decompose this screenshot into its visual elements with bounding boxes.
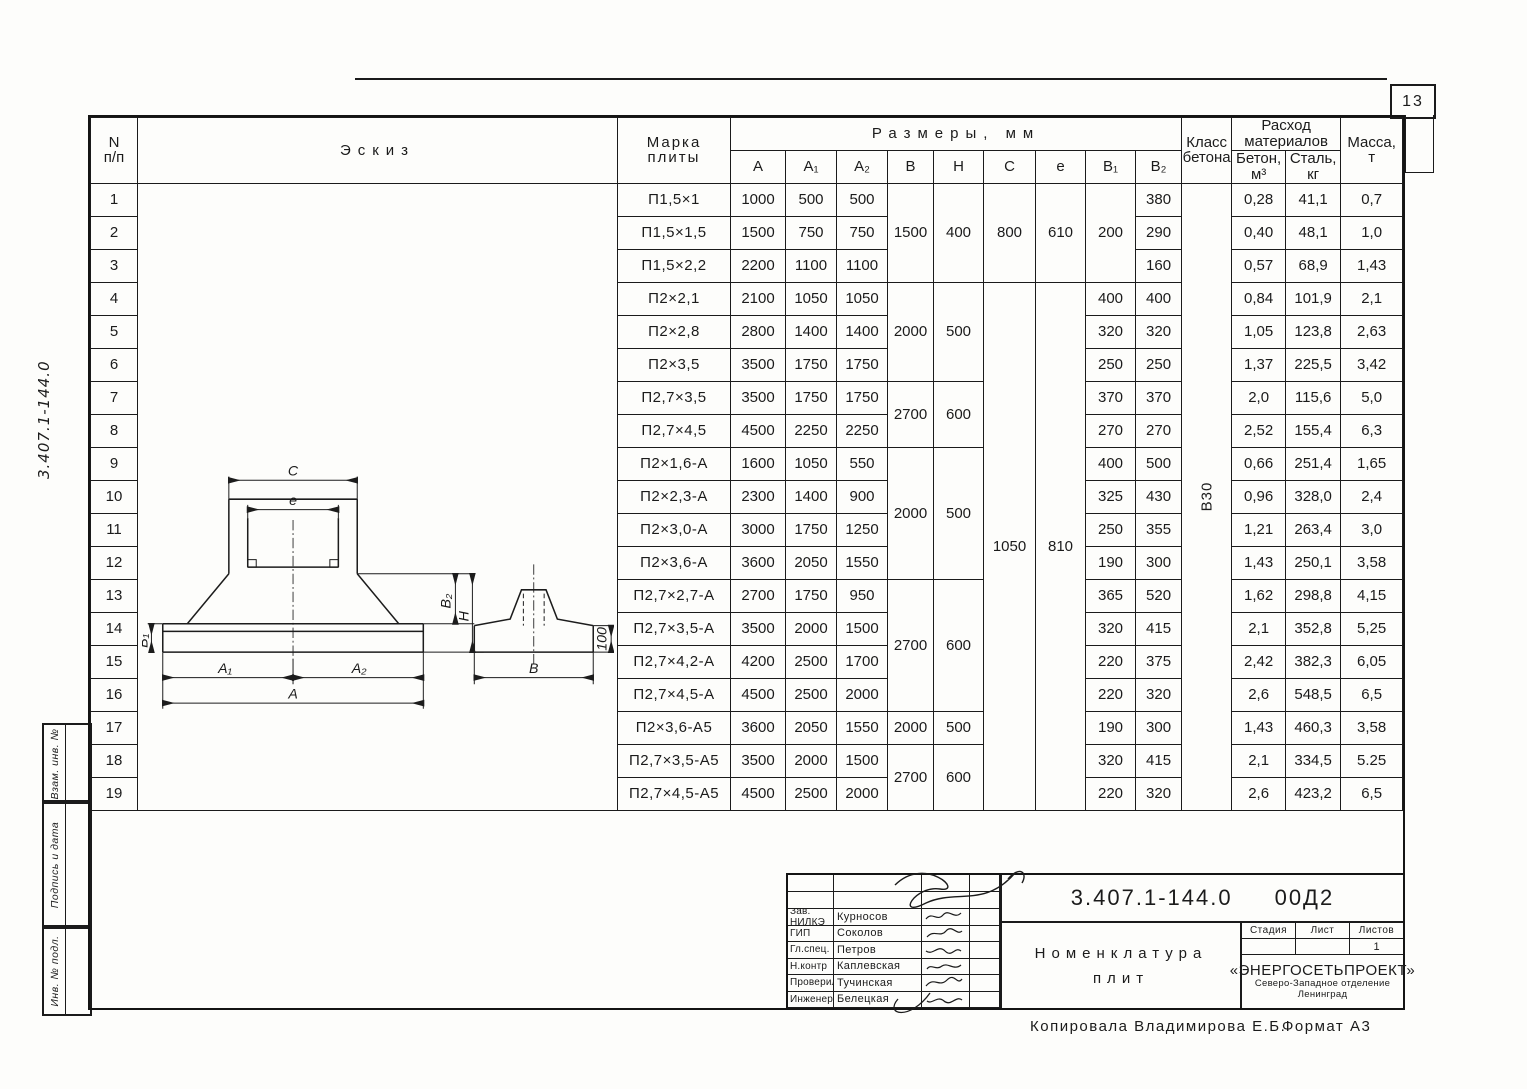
person-name: Соколов — [834, 926, 922, 943]
dim-a: 1600 — [731, 447, 786, 480]
header-col-a: А — [731, 150, 786, 183]
plate-mass: 3,42 — [1341, 348, 1403, 381]
header-col-b1: В₁ — [1086, 150, 1136, 183]
signature-cell — [922, 942, 970, 959]
steel-weight: 548,5 — [1286, 678, 1341, 711]
dim-b2: 380 — [1136, 183, 1182, 216]
dim-a: 3500 — [731, 612, 786, 645]
dim-a2: 1750 — [837, 348, 888, 381]
dim-a: 1500 — [731, 216, 786, 249]
dim-b1: 190 — [1086, 711, 1136, 744]
concrete-volume: 0,96 — [1232, 480, 1286, 513]
plate-mass: 1,43 — [1341, 249, 1403, 282]
steel-weight: 298,8 — [1286, 579, 1341, 612]
dim-label-a2: А₂ — [350, 660, 366, 676]
dim-a2: 900 — [837, 480, 888, 513]
header-col-b: В — [888, 150, 934, 183]
dim-b2: 500 — [1136, 447, 1182, 480]
plate-mark: П2×1,6-А — [618, 447, 731, 480]
dim-a2: 2000 — [837, 678, 888, 711]
header-dimensions: Размеры, мм — [731, 118, 1182, 151]
plate-mass: 6,5 — [1341, 777, 1403, 810]
stage-sheet-header-row: Стадия Лист Листов — [1242, 923, 1403, 939]
dim-b: 2000 — [888, 447, 934, 579]
dim-a: 2800 — [731, 315, 786, 348]
row-number: 16 — [91, 678, 138, 711]
stamp-label: Инв. № подл. — [49, 935, 61, 1006]
role-label: ГИП — [788, 926, 834, 943]
concrete-volume: 0,66 — [1232, 447, 1286, 480]
dim-label-100: 100 — [594, 626, 610, 650]
plate-mark: П2×2,8 — [618, 315, 731, 348]
page-number-column — [1405, 115, 1434, 173]
signature-squiggle — [924, 910, 964, 923]
steel-weight: 225,5 — [1286, 348, 1341, 381]
stage-value — [1242, 939, 1296, 954]
dim-b1: 400 — [1086, 282, 1136, 315]
document-number: 3.407.1-144.0 00Д2 — [1000, 875, 1403, 923]
steel-weight: 68,9 — [1286, 249, 1341, 282]
concrete-volume: 2,42 — [1232, 645, 1286, 678]
dim-b2: 300 — [1136, 546, 1182, 579]
steel-weight: 328,0 — [1286, 480, 1341, 513]
dim-b1: 250 — [1086, 513, 1136, 546]
sketch-cell: С е В₁ В₂ Н А₁ А₂ А В 100 — [138, 183, 618, 810]
dim-e: 810 — [1036, 282, 1086, 810]
dim-b2: 320 — [1136, 315, 1182, 348]
stamp-label-strip: Подпись и дата — [44, 802, 66, 927]
steel-weight: 334,5 — [1286, 744, 1341, 777]
plate-mark: П1,5×1,5 — [618, 216, 731, 249]
dim-a1: 1750 — [786, 513, 837, 546]
concrete-volume: 2,1 — [1232, 744, 1286, 777]
handwritten-margin-code: 3.407.1-144.0 — [35, 363, 57, 479]
signature-squiggle — [924, 927, 964, 940]
dim-a: 3500 — [731, 348, 786, 381]
plate-mark: П2×2,3-А — [618, 480, 731, 513]
plate-mark: П1,5×1 — [618, 183, 731, 216]
dim-h: 600 — [934, 381, 984, 447]
stamp-box-podpis-data: Подпись и дата — [42, 800, 92, 929]
dim-a: 3500 — [731, 381, 786, 414]
steel-weight: 251,4 — [1286, 447, 1341, 480]
concrete-volume: 1,43 — [1232, 546, 1286, 579]
empty-cell — [788, 875, 834, 892]
dim-label-b: В — [529, 660, 538, 676]
concrete-volume: 0,28 — [1232, 183, 1286, 216]
dim-a1: 1750 — [786, 348, 837, 381]
row-number: 8 — [91, 414, 138, 447]
plate-mass: 6,5 — [1341, 678, 1403, 711]
dim-b2: 430 — [1136, 480, 1182, 513]
dim-e: 610 — [1036, 183, 1086, 282]
dim-b1: 220 — [1086, 777, 1136, 810]
dim-a2: 750 — [837, 216, 888, 249]
header-sketch: Эскиз — [138, 118, 618, 184]
signature-cell — [922, 992, 970, 1009]
dim-b2: 250 — [1136, 348, 1182, 381]
dim-c: 1050 — [984, 282, 1036, 810]
dim-a: 3000 — [731, 513, 786, 546]
plate-mass: 6,3 — [1341, 414, 1403, 447]
dim-a1: 2000 — [786, 744, 837, 777]
plate-mark: П2,7×4,5-А5 — [618, 777, 731, 810]
concrete-volume: 0,40 — [1232, 216, 1286, 249]
dim-b1: 220 — [1086, 678, 1136, 711]
dim-b2: 320 — [1136, 777, 1182, 810]
dim-h: 400 — [934, 183, 984, 282]
plate-mark: П2×3,0-А — [618, 513, 731, 546]
dim-b1: 200 — [1086, 183, 1136, 282]
dim-b1: 320 — [1086, 744, 1136, 777]
plate-mark: П2,7×4,5 — [618, 414, 731, 447]
header-concrete-class: Класс бетона — [1182, 118, 1232, 184]
dim-label-b1: В₁ — [142, 633, 152, 647]
dim-h: 500 — [934, 711, 984, 744]
drawing-title: Номенклатура плит — [1000, 923, 1240, 1008]
table-row: 1 С е В₁ В₂ Н А₁ А₂ А — [91, 183, 1403, 216]
dim-a1: 1750 — [786, 381, 837, 414]
dim-a1: 1100 — [786, 249, 837, 282]
plate-mark: П2,7×4,5-А — [618, 678, 731, 711]
steel-weight: 155,4 — [1286, 414, 1341, 447]
signature-squiggle — [924, 993, 964, 1006]
signature-grid: Зав. НИЛКЭ Курносов ГИП Соколов Гл.спец.… — [788, 875, 1000, 1008]
dim-b1: 325 — [1086, 480, 1136, 513]
dim-a1: 1050 — [786, 282, 837, 315]
person-name: Белецкая — [834, 992, 922, 1009]
stage-label: Стадия — [1242, 923, 1296, 938]
dim-a: 2100 — [731, 282, 786, 315]
dim-b1: 270 — [1086, 414, 1136, 447]
signature-cell — [922, 926, 970, 943]
dim-label-a: А — [287, 686, 297, 702]
plate-mark: П2×2,1 — [618, 282, 731, 315]
dim-a1: 2500 — [786, 645, 837, 678]
date-cell — [970, 959, 1000, 976]
dim-a: 4500 — [731, 777, 786, 810]
concrete-volume: 0,57 — [1232, 249, 1286, 282]
concrete-volume: 0,84 — [1232, 282, 1286, 315]
header-mark: Марка плиты — [618, 118, 731, 184]
date-cell — [970, 926, 1000, 943]
dim-a1: 500 — [786, 183, 837, 216]
dim-b1: 320 — [1086, 315, 1136, 348]
dim-a2: 1100 — [837, 249, 888, 282]
plate-mass: 2,63 — [1341, 315, 1403, 348]
empty-cell — [922, 875, 970, 892]
concrete-volume: 2,6 — [1232, 777, 1286, 810]
plate-mass: 1,0 — [1341, 216, 1403, 249]
plate-mass: 5,0 — [1341, 381, 1403, 414]
row-number: 3 — [91, 249, 138, 282]
signature-squiggle — [924, 976, 964, 989]
dim-a1: 2050 — [786, 711, 837, 744]
header-material-consumption: Расход материалов — [1232, 118, 1341, 151]
signature-cell — [922, 975, 970, 992]
dim-label-c: С — [287, 465, 298, 480]
dim-a2: 1400 — [837, 315, 888, 348]
empty-cell — [788, 892, 834, 909]
plate-mass: 5.25 — [1341, 744, 1403, 777]
row-number: 5 — [91, 315, 138, 348]
dim-b1: 365 — [1086, 579, 1136, 612]
signature-squiggle — [924, 943, 964, 956]
row-number: 1 — [91, 183, 138, 216]
sheets-value: 1 — [1350, 939, 1403, 954]
person-name: Курносов — [834, 909, 922, 926]
dim-a: 3500 — [731, 744, 786, 777]
plate-mass: 4,15 — [1341, 579, 1403, 612]
page-number-box: 13 — [1390, 84, 1436, 119]
format-caption: Формат А3 — [1282, 1018, 1371, 1035]
dim-label-a1: А₁ — [217, 660, 232, 676]
dim-b: 2000 — [888, 282, 934, 381]
dim-a: 4500 — [731, 414, 786, 447]
steel-weight: 115,6 — [1286, 381, 1341, 414]
row-number: 6 — [91, 348, 138, 381]
dim-a2: 1550 — [837, 711, 888, 744]
dim-a2: 1500 — [837, 744, 888, 777]
page-number: 13 — [1402, 93, 1424, 111]
dim-b: 2000 — [888, 711, 934, 744]
dim-a2: 1550 — [837, 546, 888, 579]
dim-b2: 400 — [1136, 282, 1182, 315]
plate-mass: 3,58 — [1341, 711, 1403, 744]
concrete-volume: 2,6 — [1232, 678, 1286, 711]
plate-mark: П2,7×3,5-А5 — [618, 744, 731, 777]
steel-weight: 352,8 — [1286, 612, 1341, 645]
dim-a2: 950 — [837, 579, 888, 612]
title-block: Зав. НИЛКЭ Курносов ГИП Соколов Гл.спец.… — [786, 873, 1403, 1008]
plate-mark: П2,7×2,7-А — [618, 579, 731, 612]
dim-h: 500 — [934, 447, 984, 579]
dim-label-b2: В₂ — [438, 593, 454, 608]
plate-nomenclature-table: N п/п Эскиз Марка плиты Размеры, мм Клас… — [90, 117, 1403, 811]
dim-b1: 250 — [1086, 348, 1136, 381]
steel-weight: 101,9 — [1286, 282, 1341, 315]
table-header: N п/п Эскиз Марка плиты Размеры, мм Клас… — [91, 118, 1403, 184]
stamp-label-strip: Взам. инв. № — [44, 725, 66, 802]
concrete-volume: 2,0 — [1232, 381, 1286, 414]
header-col-concrete: Бетон, м³ — [1232, 150, 1286, 183]
row-number: 11 — [91, 513, 138, 546]
dim-a2: 1500 — [837, 612, 888, 645]
dim-a: 3600 — [731, 546, 786, 579]
dim-a: 3600 — [731, 711, 786, 744]
extension-lines — [147, 476, 483, 708]
stamp-label-strip: Инв. № подл. — [44, 927, 66, 1014]
role-label: Н.контр — [788, 959, 834, 976]
steel-weight: 263,4 — [1286, 513, 1341, 546]
person-name: Каплевская — [834, 959, 922, 976]
stamp-box-vzam-inv: Взам. инв. № — [42, 723, 92, 804]
dim-label-e: е — [289, 492, 297, 508]
concrete-volume: 1,05 — [1232, 315, 1286, 348]
concrete-volume: 1,43 — [1232, 711, 1286, 744]
header-col-steel: Сталь, кг — [1286, 150, 1341, 183]
steel-weight: 48,1 — [1286, 216, 1341, 249]
dim-a1: 2500 — [786, 678, 837, 711]
row-number: 10 — [91, 480, 138, 513]
row-number: 12 — [91, 546, 138, 579]
dim-a: 4500 — [731, 678, 786, 711]
signature-cell — [922, 959, 970, 976]
concrete-volume: 1,62 — [1232, 579, 1286, 612]
plate-mark: П2×3,6-А — [618, 546, 731, 579]
dim-b2: 290 — [1136, 216, 1182, 249]
dim-h: 500 — [934, 282, 984, 381]
org-name: «ЭНЕРГОСЕТЬПРОЕКТ» — [1230, 962, 1415, 979]
dim-a: 2300 — [731, 480, 786, 513]
org-city: Ленинград — [1298, 990, 1348, 1001]
concrete-volume: 1,21 — [1232, 513, 1286, 546]
dim-a: 2700 — [731, 579, 786, 612]
concrete-volume: 2,1 — [1232, 612, 1286, 645]
plate-mass: 2,4 — [1341, 480, 1403, 513]
plate-mark: П2,7×4,2-А — [618, 645, 731, 678]
steel-weight: 423,2 — [1286, 777, 1341, 810]
plate-mark: П2,7×3,5-А — [618, 612, 731, 645]
row-number: 18 — [91, 744, 138, 777]
steel-weight: 250,1 — [1286, 546, 1341, 579]
dim-a1: 1050 — [786, 447, 837, 480]
dim-a1: 1400 — [786, 315, 837, 348]
dim-a2: 2000 — [837, 777, 888, 810]
date-cell — [970, 975, 1000, 992]
header-col-c: С — [984, 150, 1036, 183]
dim-label-h: Н — [456, 610, 472, 621]
dim-b2: 160 — [1136, 249, 1182, 282]
row-number: 2 — [91, 216, 138, 249]
concrete-class-cell: В30 — [1182, 183, 1232, 810]
dim-a2: 2250 — [837, 414, 888, 447]
signature-squiggle — [924, 960, 964, 973]
header-row-number: N п/п — [91, 118, 138, 184]
dim-a2: 550 — [837, 447, 888, 480]
organization-block: «ЭНЕРГОСЕТЬПРОЕКТ» Северо-Западное отдел… — [1242, 955, 1403, 1008]
header-col-a1: А₁ — [786, 150, 837, 183]
row-number: 7 — [91, 381, 138, 414]
plate-section-sketch: С е В₁ В₂ Н А₁ А₂ А В 100 — [142, 465, 614, 725]
stage-sheet-value-row: 1 — [1242, 939, 1403, 955]
header-col-e: е — [1036, 150, 1086, 183]
title-line-1: Номенклатура — [1035, 945, 1208, 962]
row-number: 13 — [91, 579, 138, 612]
concrete-volume: 1,37 — [1232, 348, 1286, 381]
copied-by-caption: Копировала Владимирова Е.Б. — [1030, 1018, 1286, 1035]
dim-a: 1000 — [731, 183, 786, 216]
stamp-box-inv-podl: Инв. № подл. — [42, 925, 92, 1016]
dim-a: 4200 — [731, 645, 786, 678]
dim-b2: 370 — [1136, 381, 1182, 414]
dim-b: 2700 — [888, 579, 934, 711]
dim-b2: 415 — [1136, 744, 1182, 777]
dim-a1: 2050 — [786, 546, 837, 579]
date-cell — [970, 992, 1000, 1009]
dim-b2: 520 — [1136, 579, 1182, 612]
dim-b2: 415 — [1136, 612, 1182, 645]
drawing-frame: N п/п Эскиз Марка плиты Размеры, мм Клас… — [88, 115, 1405, 1010]
dim-a2: 1250 — [837, 513, 888, 546]
steel-weight: 41,1 — [1286, 183, 1341, 216]
steel-weight: 123,8 — [1286, 315, 1341, 348]
plate-mass: 6,05 — [1341, 645, 1403, 678]
date-cell — [970, 909, 1000, 926]
dim-a1: 1400 — [786, 480, 837, 513]
dim-b2: 355 — [1136, 513, 1182, 546]
dim-a2: 1050 — [837, 282, 888, 315]
dim-a1: 2000 — [786, 612, 837, 645]
signature-cell — [922, 909, 970, 926]
row-number: 9 — [91, 447, 138, 480]
steel-weight: 382,3 — [1286, 645, 1341, 678]
plate-mark: П2,7×3,5 — [618, 381, 731, 414]
row-number: 17 — [91, 711, 138, 744]
dim-a1: 2250 — [786, 414, 837, 447]
empty-cell — [970, 892, 1000, 909]
dim-c: 800 — [984, 183, 1036, 282]
scanned-drawing-sheet: 13 3.407.1-144.0 Взам. инв. № Подпись и … — [0, 0, 1527, 1089]
dim-b1: 320 — [1086, 612, 1136, 645]
role-label: Инженер — [788, 992, 834, 1009]
dim-b1: 370 — [1086, 381, 1136, 414]
sheet-value — [1296, 939, 1350, 954]
concrete-volume: 2,52 — [1232, 414, 1286, 447]
concrete-class-value: В30 — [1198, 482, 1215, 512]
header-col-a2: А₂ — [837, 150, 888, 183]
empty-cell — [922, 892, 970, 909]
sheet-label: Лист — [1296, 923, 1350, 938]
dim-b: 2700 — [888, 381, 934, 447]
plate-mass: 0,7 — [1341, 183, 1403, 216]
row-number: 19 — [91, 777, 138, 810]
person-name: Тучинская — [834, 975, 922, 992]
row-number: 4 — [91, 282, 138, 315]
dim-a2: 1700 — [837, 645, 888, 678]
dim-b2: 375 — [1136, 645, 1182, 678]
dim-a: 2200 — [731, 249, 786, 282]
sheet-top-edge-line — [355, 78, 1387, 80]
dim-h: 600 — [934, 744, 984, 810]
role-label: Проверил — [788, 975, 834, 992]
plate-mark: П2×3,5 — [618, 348, 731, 381]
stamp-label: Подпись и дата — [49, 821, 61, 907]
stage-sheet-org-block: Стадия Лист Листов 1 «ЭНЕРГОСЕТЬПРОЕКТ» … — [1240, 923, 1403, 1008]
dim-a1: 1750 — [786, 579, 837, 612]
dim-a2: 1750 — [837, 381, 888, 414]
row-number: 14 — [91, 612, 138, 645]
header-col-b2: В₂ — [1136, 150, 1182, 183]
dim-b: 2700 — [888, 744, 934, 810]
dim-b1: 400 — [1086, 447, 1136, 480]
plate-mark: П2×3,6-А5 — [618, 711, 731, 744]
dim-b1: 220 — [1086, 645, 1136, 678]
doc-number: 3.407.1-144.0 — [1071, 885, 1233, 911]
plate-mass: 3,0 — [1341, 513, 1403, 546]
plate-mass: 1,65 — [1341, 447, 1403, 480]
sheets-label: Листов — [1350, 923, 1403, 938]
plate-mass: 2,1 — [1341, 282, 1403, 315]
dim-a2: 500 — [837, 183, 888, 216]
date-cell — [970, 942, 1000, 959]
empty-cell — [834, 875, 922, 892]
dim-b: 1500 — [888, 183, 934, 282]
plate-mass: 5,25 — [1341, 612, 1403, 645]
role-label: Гл.спец. — [788, 942, 834, 959]
dim-b2: 320 — [1136, 678, 1182, 711]
empty-cell — [970, 875, 1000, 892]
